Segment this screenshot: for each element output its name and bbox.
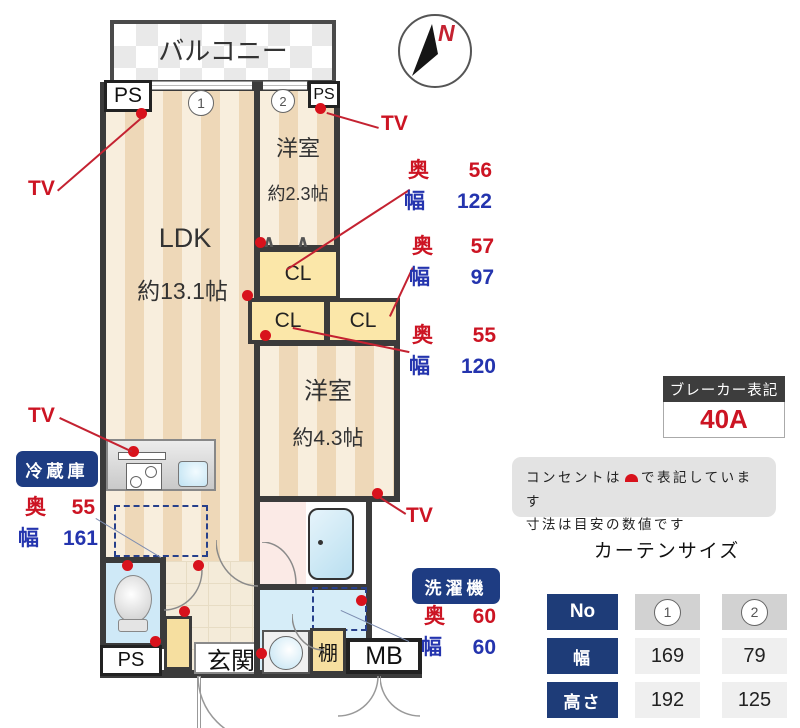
north-compass: N bbox=[398, 14, 472, 88]
outlet-dot bbox=[315, 103, 326, 114]
bedroom2-size: 約2.3帖 bbox=[255, 185, 341, 203]
closet-top: CL bbox=[256, 248, 340, 300]
ps-box-top-left: PS bbox=[104, 80, 152, 112]
fridge-depth: 奥55 bbox=[25, 497, 95, 518]
outlet-dot bbox=[193, 560, 204, 571]
curtain-header-height: 高さ bbox=[547, 682, 618, 718]
curtain-marker-2: 2 bbox=[271, 89, 295, 113]
curtain-height-2: 125 bbox=[722, 682, 787, 718]
closet-label: CL bbox=[285, 262, 312, 286]
notes-box: コンセントはで表記しています 寸法は目安の数値です bbox=[512, 457, 776, 517]
door-arc-hall bbox=[216, 540, 259, 587]
curtain-header-no: No bbox=[547, 594, 618, 630]
door-arc-entrance bbox=[198, 676, 265, 728]
outlet-dot bbox=[150, 636, 161, 647]
bedroom1-name: 洋室 bbox=[288, 380, 368, 404]
outlet-dot bbox=[256, 648, 267, 659]
curtain-marker-1: 1 bbox=[188, 90, 214, 116]
room-bedroom-1 bbox=[254, 340, 400, 502]
outlet-dot bbox=[260, 330, 271, 341]
mb-box: MB bbox=[346, 638, 422, 674]
closet-top-width: 幅122 bbox=[404, 191, 492, 212]
breaker-value: 40A bbox=[663, 402, 785, 438]
tv-label: TV bbox=[406, 505, 433, 526]
kitchen-board bbox=[118, 452, 166, 460]
toilet-fixture bbox=[114, 575, 152, 623]
curtain-col2-marker: 2 bbox=[722, 594, 787, 630]
curtain-width-2: 79 bbox=[722, 638, 787, 674]
fridge-tag: 冷蔵庫 bbox=[16, 451, 98, 487]
ldk-name: LDK bbox=[145, 225, 225, 252]
ps-box-bottom: PS bbox=[100, 645, 162, 676]
note-line-1: コンセントはで表記しています bbox=[526, 466, 762, 513]
shoe-cabinet bbox=[164, 616, 192, 670]
bedroom1-size: 約4.3帖 bbox=[278, 428, 378, 449]
fridge-width: 幅161 bbox=[18, 528, 98, 549]
closet-left-width: 幅120 bbox=[409, 356, 496, 377]
tv-label: TV bbox=[381, 113, 408, 134]
outlet-dot bbox=[356, 595, 367, 606]
outlet-dot bbox=[179, 606, 190, 617]
note-line-2: 寸法は目安の数値です bbox=[526, 513, 762, 537]
outlet-legend-icon bbox=[625, 474, 638, 482]
ps-label: PS bbox=[313, 86, 334, 104]
room-bedroom-2 bbox=[254, 85, 340, 251]
closet-right-depth: 奥57 bbox=[412, 236, 494, 257]
fridge-space bbox=[114, 505, 208, 557]
closet-top-depth: 奥56 bbox=[408, 160, 492, 181]
floor-plan-page: バルコニー N LDK 約13.1帖 洋室 約2.3帖 PS PS 1 2 ∧ … bbox=[0, 0, 800, 728]
mb-label: MB bbox=[365, 642, 403, 671]
curtain-col1-marker: 1 bbox=[635, 594, 700, 630]
stove bbox=[126, 463, 162, 490]
ldk-size: 約13.1帖 bbox=[120, 280, 245, 303]
door-arc-washroom bbox=[292, 614, 325, 651]
door-arc-mb-left bbox=[338, 676, 379, 717]
curtain-header-width: 幅 bbox=[547, 638, 618, 674]
toilet-tank bbox=[118, 619, 148, 632]
genkan-label: 玄関 bbox=[207, 641, 255, 676]
outlet-dot bbox=[122, 560, 133, 571]
north-label: N bbox=[438, 20, 455, 47]
curtain-height-1: 192 bbox=[635, 682, 700, 718]
door-arc-toilet bbox=[164, 570, 203, 611]
washer-tag: 洗濯機 bbox=[412, 568, 500, 604]
ps-label: PS bbox=[118, 649, 145, 672]
door-arc-bath bbox=[262, 542, 297, 585]
balcony-label: バルコニー bbox=[114, 38, 332, 64]
washer-depth: 奥60 bbox=[424, 606, 496, 627]
breaker-box: ブレーカー表記 40A bbox=[663, 376, 785, 439]
closet-right-width: 幅97 bbox=[409, 267, 494, 288]
washer-width: 幅60 bbox=[421, 637, 496, 658]
balcony-area: バルコニー bbox=[110, 20, 336, 84]
ps-label: PS bbox=[114, 84, 142, 108]
curtain-width-1: 169 bbox=[635, 638, 700, 674]
door-arc-mb-right bbox=[380, 676, 421, 717]
kitchen-sink bbox=[178, 461, 208, 487]
closet-label: CL bbox=[350, 309, 377, 333]
room-ldk bbox=[100, 85, 260, 569]
tv-label: TV bbox=[28, 405, 55, 426]
breaker-title: ブレーカー表記 bbox=[663, 376, 785, 402]
window-marker bbox=[152, 81, 252, 90]
bedroom2-name: 洋室 bbox=[260, 138, 336, 160]
tv-label: TV bbox=[28, 178, 55, 199]
closet-left-depth: 奥55 bbox=[412, 325, 496, 346]
curtain-title: カーテンサイズ bbox=[547, 536, 787, 563]
outlet-dot bbox=[255, 237, 266, 248]
bathtub bbox=[308, 508, 354, 580]
north-needle-icon bbox=[400, 16, 470, 86]
outlet-dot bbox=[242, 290, 253, 301]
